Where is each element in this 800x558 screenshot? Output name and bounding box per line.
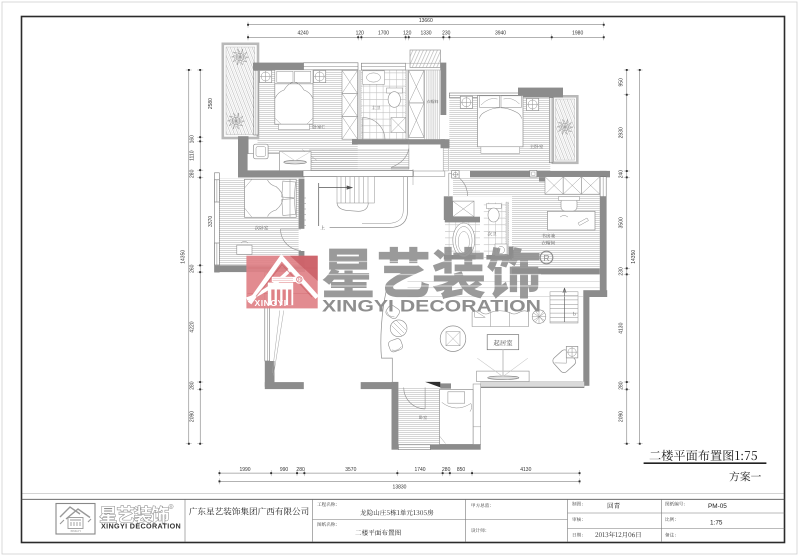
svg-text:1980: 1980 xyxy=(572,31,583,37)
svg-text:280: 280 xyxy=(190,169,196,178)
svg-text:1700: 1700 xyxy=(378,31,389,37)
svg-text:4130: 4130 xyxy=(619,322,625,333)
svg-text:4240: 4240 xyxy=(297,31,308,37)
svg-text:2090: 2090 xyxy=(190,411,196,422)
svg-text:1740: 1740 xyxy=(414,467,425,473)
svg-text:2930: 2930 xyxy=(619,127,625,138)
svg-text:230: 230 xyxy=(619,267,625,276)
svg-text:3940: 3940 xyxy=(495,31,506,37)
svg-text:1:75: 1:75 xyxy=(710,520,723,527)
svg-text:4220: 4220 xyxy=(190,321,196,332)
svg-text:14350: 14350 xyxy=(631,250,637,264)
svg-text:2090: 2090 xyxy=(619,411,625,422)
svg-text:XINGYI DECORATION: XINGYI DECORATION xyxy=(322,298,541,316)
svg-text:1330: 1330 xyxy=(420,31,431,37)
svg-text:230: 230 xyxy=(442,31,451,37)
svg-text:280: 280 xyxy=(619,381,625,390)
svg-text:XINGYI: XINGYI xyxy=(255,298,287,308)
svg-text:850: 850 xyxy=(457,467,466,473)
svg-text:1990: 1990 xyxy=(239,467,250,473)
svg-text:280: 280 xyxy=(442,467,451,473)
svg-text:PM-05: PM-05 xyxy=(708,503,727,510)
svg-text:14350: 14350 xyxy=(180,250,186,264)
svg-text:160: 160 xyxy=(190,135,196,144)
svg-text:280: 280 xyxy=(190,381,196,390)
svg-text:990: 990 xyxy=(280,467,289,473)
svg-text:R: R xyxy=(543,253,549,263)
svg-text:13830: 13830 xyxy=(393,484,407,490)
svg-text:4130: 4130 xyxy=(520,467,531,473)
svg-text:120: 120 xyxy=(356,31,365,37)
svg-text:XINGYI: XINGYI xyxy=(70,529,80,533)
svg-text:120: 120 xyxy=(403,31,412,37)
svg-text:3500: 3500 xyxy=(619,217,625,228)
svg-text:950: 950 xyxy=(619,78,625,87)
svg-text:280: 280 xyxy=(296,467,305,473)
svg-text:260: 260 xyxy=(190,264,196,273)
svg-text:1110: 1110 xyxy=(190,150,196,161)
svg-text:13660: 13660 xyxy=(419,18,433,24)
svg-text:2580: 2580 xyxy=(208,98,214,109)
svg-text:3570: 3570 xyxy=(345,467,356,473)
svg-text:XINGYI DECORATION: XINGYI DECORATION xyxy=(101,522,181,531)
svg-text:3370: 3370 xyxy=(208,216,214,227)
svg-text:240: 240 xyxy=(619,170,625,179)
